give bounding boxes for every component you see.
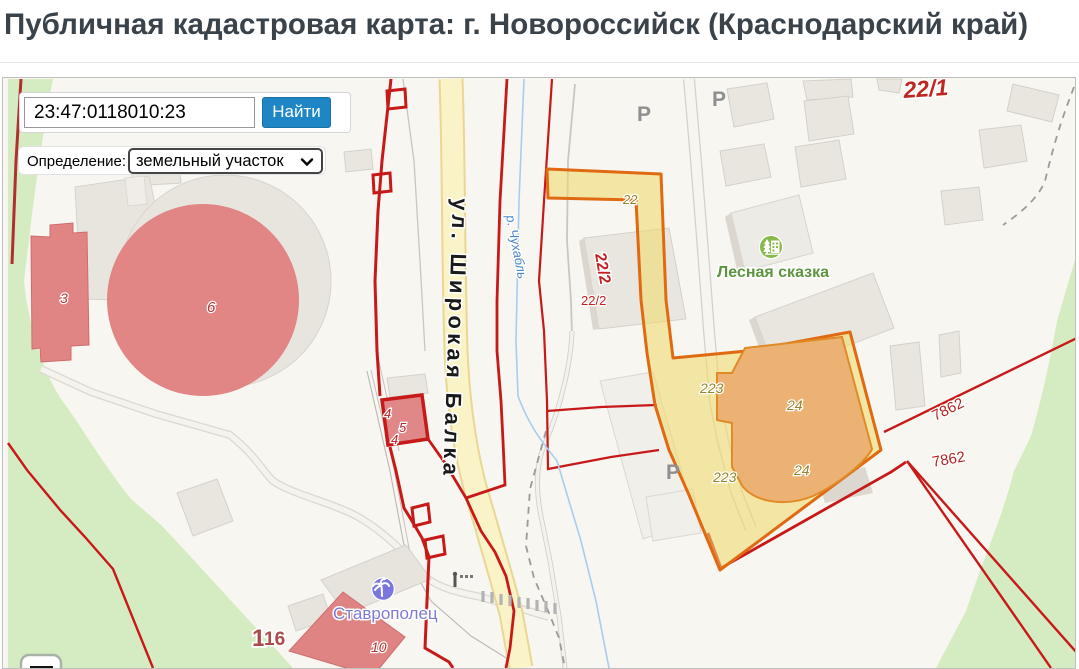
svg-text:24: 24	[793, 462, 810, 478]
svg-text:Р: Р	[637, 103, 651, 126]
svg-text:16: 16	[264, 629, 285, 650]
svg-text:10: 10	[371, 639, 387, 655]
svg-text:Р: Р	[666, 461, 680, 484]
svg-text:223: 223	[699, 380, 724, 396]
svg-text:24: 24	[786, 397, 803, 413]
svg-text:Р: Р	[712, 88, 726, 111]
svg-text:6: 6	[207, 299, 216, 316]
svg-text:3: 3	[60, 290, 68, 306]
svg-text:223: 223	[712, 469, 737, 485]
svg-text:22/1: 22/1	[902, 78, 949, 103]
svg-text:22: 22	[622, 192, 638, 207]
svg-text:Лесная сказка: Лесная сказка	[717, 264, 829, 281]
svg-text:5: 5	[399, 420, 407, 435]
svg-text:22/2: 22/2	[581, 293, 606, 308]
svg-text:4: 4	[384, 406, 391, 421]
svg-text:Ставрополец: Ставрополец	[333, 604, 438, 623]
svg-text:4: 4	[391, 432, 398, 447]
